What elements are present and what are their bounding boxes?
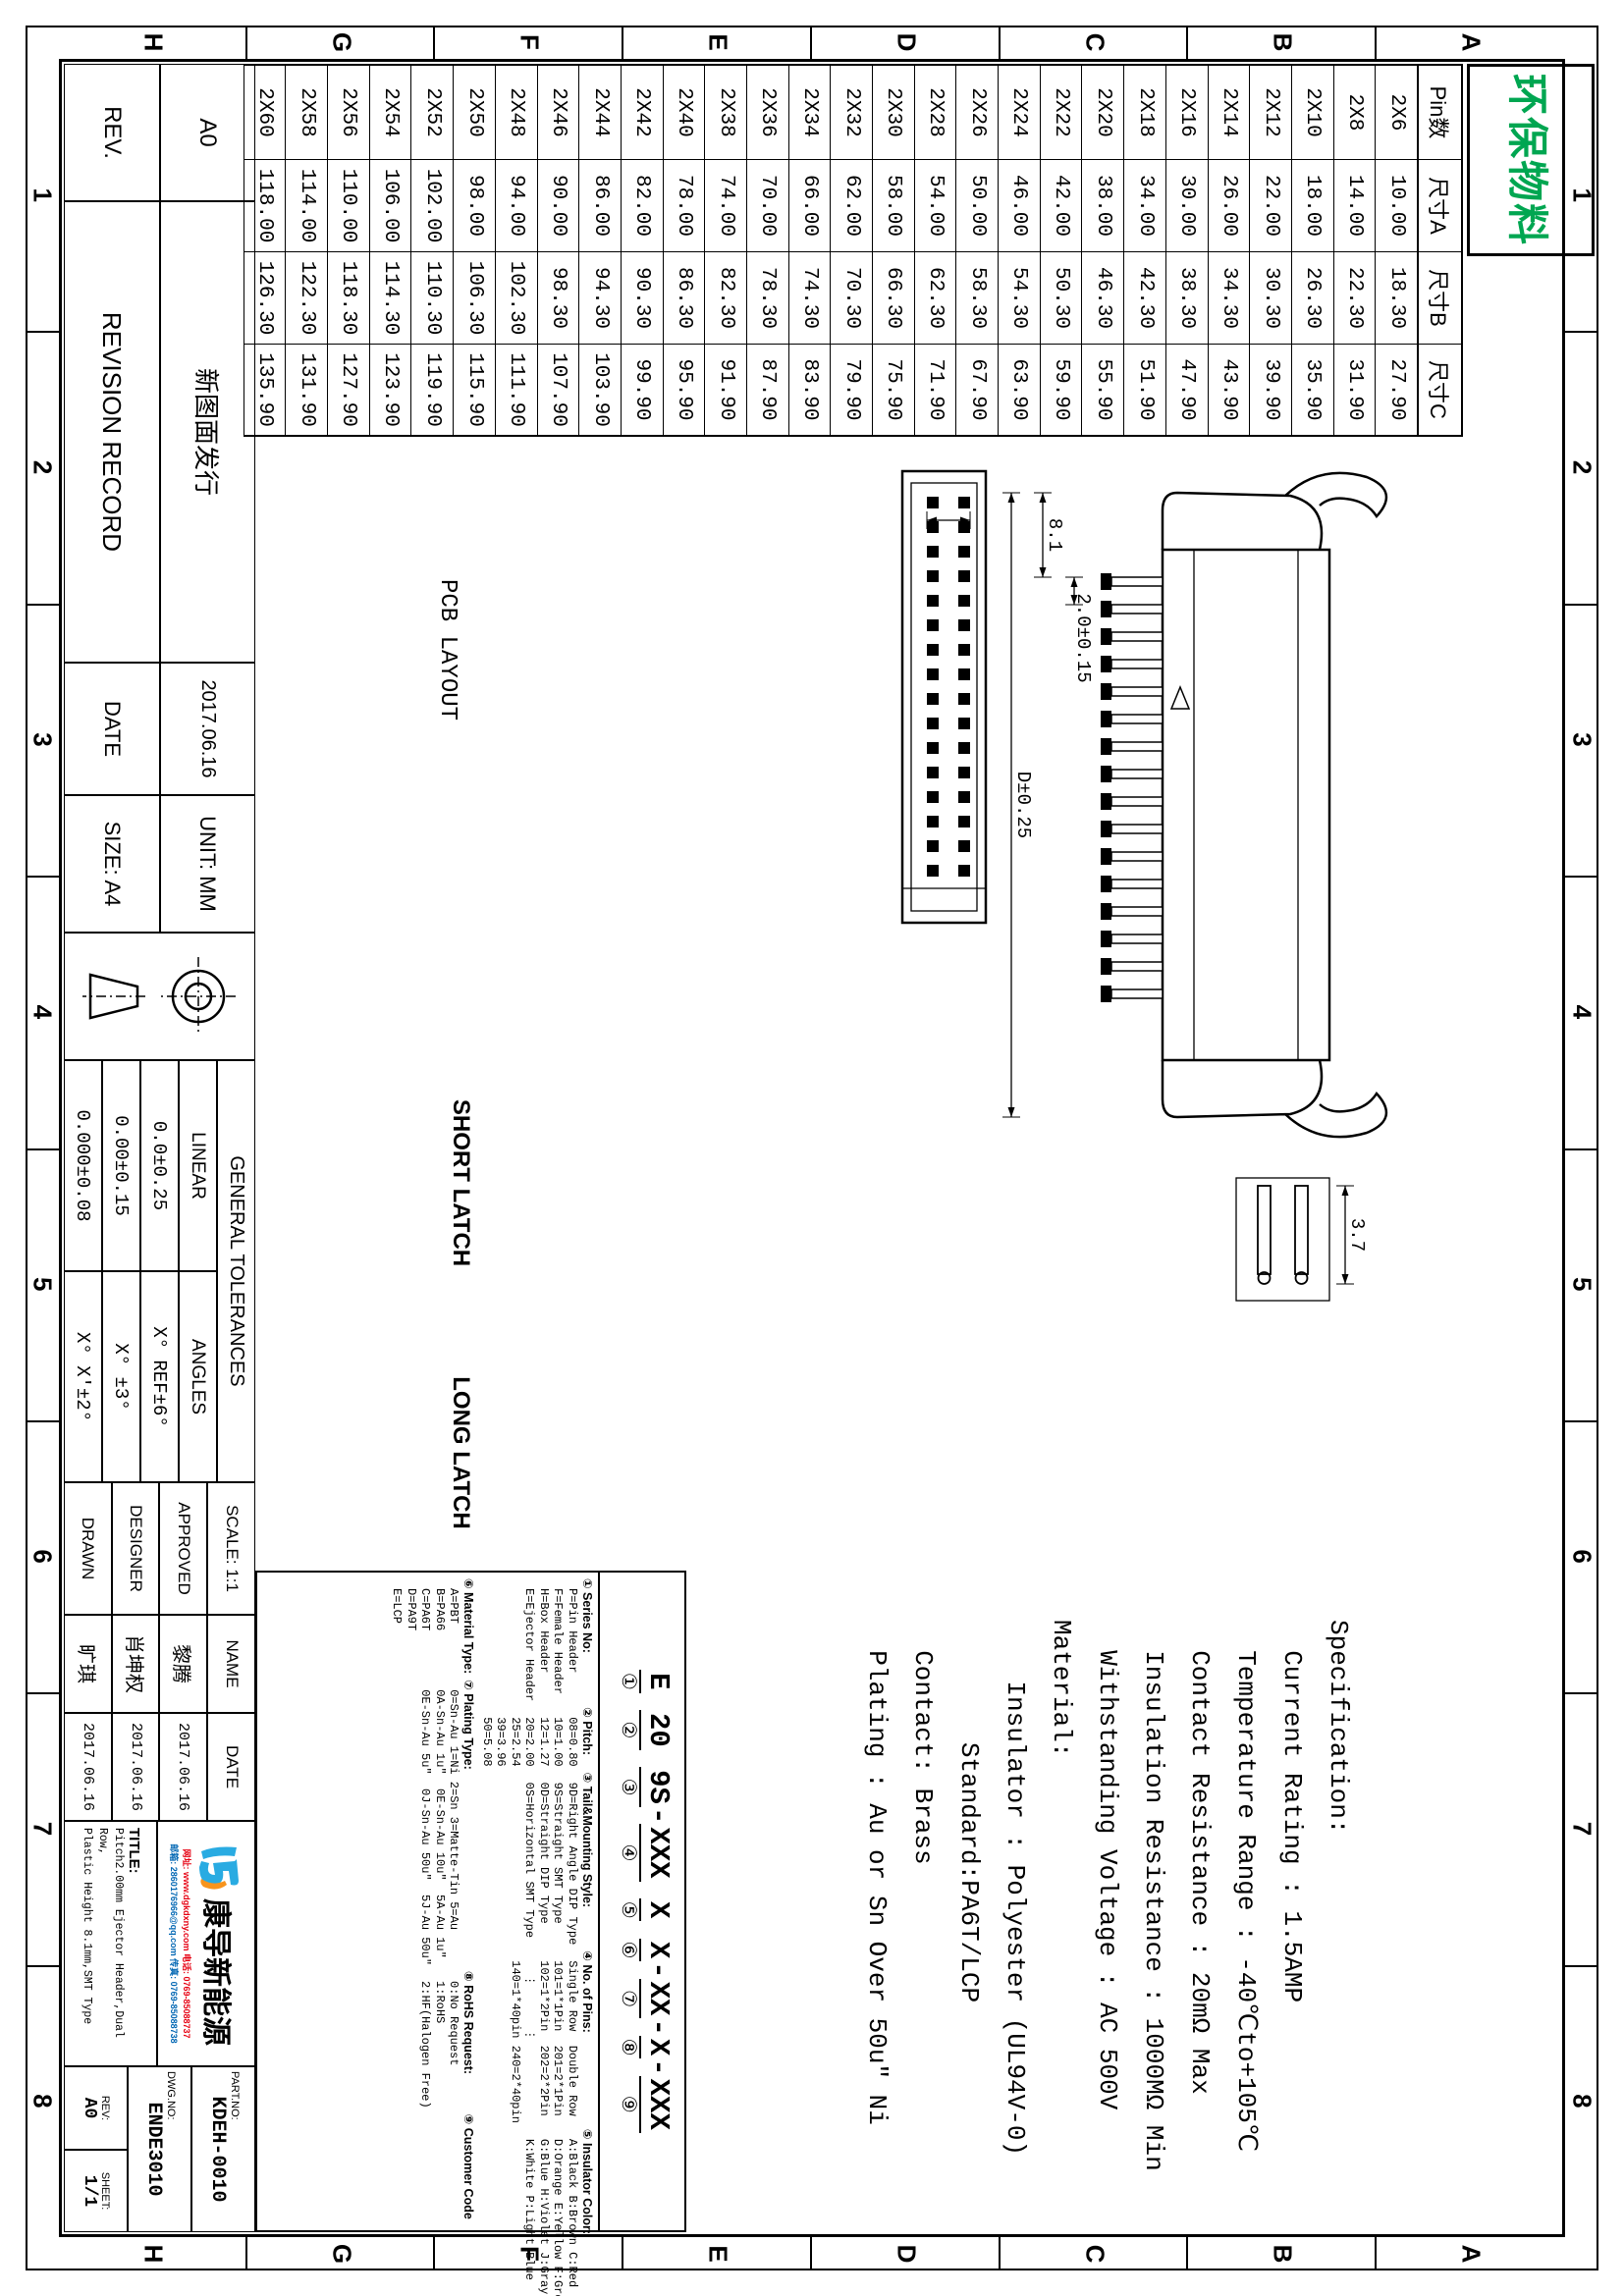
- sheet-cell: SHEET:1/1: [64, 2150, 128, 2232]
- staff-date: 2017.06.16: [64, 1713, 112, 1821]
- ordering-legend-item: 0D=Straight DIP Type: [537, 1773, 552, 1946]
- pcb-layout-label: PCB LAYOUT: [434, 579, 460, 721]
- ordering-legend-section: ① Series No:P=Pin HeaderF=Female HeaderH…: [480, 1578, 595, 1701]
- ordering-code-segment: E①: [614, 1670, 675, 1692]
- ordering-legend-item: D=PA9T: [405, 1578, 419, 1674]
- ordering-legend-item: 9D=Right Angle DIP Type: [566, 1773, 580, 1946]
- staff-date: 2017.06.16: [160, 1713, 208, 1821]
- ordering-legend-item: 101=1*1Pin 201=2*1Pin: [551, 1950, 566, 2123]
- specification-block: Specification: Current Rating : 1.5AMP T…: [853, 1620, 1361, 2232]
- tolerance-linear-value: 0.000±0.08: [64, 1060, 102, 1271]
- ordering-code-index: ⑧: [614, 2039, 639, 2056]
- ordering-legend-section: ⑤ Insulator Color:A:Black B:Brown C:RedD…: [480, 2129, 595, 2296]
- ordering-code-text: XX: [639, 1979, 675, 2019]
- staff-date: 2017.06.16: [112, 1713, 160, 1821]
- projection-symbol: [72, 937, 248, 1055]
- ordering-legend-section: ④ No. of Pins:Single Row Double Row101=1…: [480, 1950, 595, 2123]
- scale-cell: SCALE: 1:1: [207, 1482, 255, 1615]
- company-block: 康导新能源网址: www.dgkdxny.com 电话: 0769-850887…: [157, 1821, 255, 2066]
- tolerance-linear-value: 0.0±0.25: [140, 1060, 179, 1271]
- partno-value: KDEH-0010: [206, 2096, 229, 2202]
- dimension-text: 8.1: [1044, 518, 1065, 552]
- ordering-legend-section: ⑥ Material Type:A=PBTB=PA66C=PA6TD=PA9TE…: [390, 1578, 476, 1674]
- ordering-legend-title: ⑨ Customer Code: [461, 2114, 476, 2219]
- spec-line: Contact Resistance : 20mΩ Max: [1176, 1620, 1222, 2232]
- ordering-legend-title: ⑧ RoHS Request:: [461, 1971, 476, 2109]
- ordering-legend-item: E=Ejector Header: [522, 1578, 537, 1701]
- ordering-legend-item: Single Row Double Row: [566, 1950, 580, 2123]
- revision-date-label: DATE: [64, 663, 160, 795]
- ordering-code-segment: XX⑦: [614, 1979, 675, 2019]
- staff-name: 肖坤权: [112, 1615, 160, 1713]
- spec-line: Withstanding Voltage : AC 500V: [1084, 1620, 1130, 2232]
- ordering-legend-section: ⑧ RoHS Request:0:No Request1:RoHS2:HF(Ha…: [390, 1971, 476, 2109]
- revision-entry-rev: A0: [160, 64, 255, 201]
- ordering-code-text: 20: [639, 1710, 675, 1750]
- ordering-code-segment: X⑧: [614, 2036, 675, 2058]
- ordering-code-index: ⑤: [614, 1901, 639, 1919]
- staff-name: 旷琪: [64, 1615, 112, 1713]
- dwgno-label: DWG.NO:: [165, 2067, 177, 2120]
- ordering-code-segment: 9S③: [614, 1767, 675, 1807]
- ordering-legend-item: E=LCP: [390, 1578, 405, 1674]
- rev-cell: REV:A0: [64, 2066, 128, 2150]
- ordering-legend-item: G:Blue H:Violet J:Gray: [537, 2129, 552, 2296]
- long-latch-label: LONG LATCH: [447, 1376, 474, 1529]
- dimension-text: 2.0±0.15: [1072, 593, 1094, 682]
- ordering-code-index: ⑨: [614, 2096, 639, 2113]
- ordering-legend-section: ② Pitch:08=0.8010=1.0012=1.2720=2.0025=2…: [480, 1707, 595, 1766]
- drawing-viewport: AABBCCDDEEFFGGHH1122334455667788 环保物料 Pi…: [0, 0, 1624, 2296]
- rev-value: A0: [81, 2098, 100, 2119]
- ordering-legend-title: ⑤ Insulator Color:: [579, 2129, 594, 2296]
- ordering-legend-title: ④ No. of Pins:: [579, 1950, 594, 2123]
- name-header: NAME: [207, 1615, 255, 1713]
- ordering-code-separator: [641, 1750, 675, 1767]
- ordering-code-separator: [641, 1693, 675, 1710]
- sheet-label: SHEET:: [100, 2172, 112, 2211]
- ordering-legend-top: ① Series No:P=Pin HeaderF=Female HeaderH…: [480, 1573, 599, 2230]
- partno-cell: PART.NO:KDEH-0010: [191, 2066, 255, 2232]
- ordering-legend-title: ② Pitch:: [579, 1707, 594, 1766]
- short-latch-label: SHORT LATCH: [447, 1099, 474, 1266]
- ordering-legend-title: ③ Tail&Mounting Style:: [579, 1773, 594, 1946]
- ordering-legend-section: ⑨ Customer Code: [390, 2114, 476, 2219]
- company-row: 康导新能源: [193, 1842, 244, 2046]
- revision-entry-date: 2017.06.16: [160, 663, 255, 795]
- company-contact-2: 邮箱: 2860176966@qq.com 传真: 0769-85088738: [168, 1843, 181, 2043]
- ordering-legend-item: P=Pin Header: [566, 1578, 580, 1701]
- ordering-legend-item: B=PA66: [433, 1578, 448, 1674]
- spec-line: Material:: [1038, 1620, 1084, 2232]
- title-cell: TITLE:Pitch2.00mm Ejector Header,Dual Ro…: [64, 1821, 157, 2066]
- ordering-legend-item: 2:HF(Halogen Free): [418, 1971, 433, 2109]
- ordering-code-separator: -: [641, 2058, 675, 2075]
- ordering-legend-item: D:Orange E:Yellow F:Green: [551, 2129, 566, 2296]
- spec-line: Plating : Au or Sn Over 50u" Ni: [853, 1620, 899, 2232]
- ordering-code-segment: XXX⑨: [614, 2076, 675, 2133]
- tolerance-angle-value: X° ±3°: [102, 1271, 140, 1482]
- ordering-code-segment: X⑥: [614, 1939, 675, 1961]
- ordering-code-segment: X⑤: [614, 1898, 675, 1921]
- ordering-code-text: X: [639, 1898, 675, 1921]
- title-line: Pitch2.00mm Ejector Header,Dual Row,: [94, 1828, 126, 2059]
- ordering-legend-item: F=Female Header: [551, 1578, 566, 1701]
- staff-name: 黎腾: [160, 1615, 208, 1713]
- date-header: DATE: [207, 1713, 255, 1821]
- ordering-legend-item: 20=2.00: [522, 1707, 537, 1766]
- ordering-code-index: ①: [614, 1673, 639, 1690]
- ordering-information-box: E① 20② 9S③-XXX④ X⑤ X⑥-XX⑦-X⑧-XXX⑨ ① Seri…: [255, 1571, 686, 2232]
- ordering-code-text: XXX: [639, 2076, 675, 2133]
- revision-rev-label: REV.: [64, 64, 160, 201]
- ordering-code-separator: -: [641, 1807, 675, 1824]
- ordering-legend-item: 0:No Request: [447, 1971, 461, 2109]
- spec-line: Temperature Range : -40℃to+105℃: [1222, 1620, 1269, 2232]
- ordering-legend-item: A:Black B:Brown C:Red: [566, 2129, 580, 2296]
- tolerance-angle-value: X° REF±6°: [140, 1271, 179, 1482]
- title-line: Plastic Height 8.1mm,SMT Type: [79, 1828, 94, 2024]
- ordering-legend-item: 39=3.96: [494, 1707, 509, 1766]
- partno-label: PART.NO:: [229, 2067, 241, 2120]
- ordering-code-segment: XXX④: [614, 1824, 675, 1881]
- revision-entry-desc: 新图面发行: [160, 201, 255, 663]
- ordering-code-index: ⑦: [614, 1990, 639, 2007]
- ordering-code-index: ④: [614, 1844, 639, 1862]
- company-contact-1: 网址: www.dgkdxny.com 电话: 0769-85088737: [181, 1848, 193, 2038]
- ordering-legend-item: 140=1*40pin 240=2*40pin: [509, 1950, 523, 2123]
- ordering-code-index: ③: [614, 1779, 639, 1796]
- ordering-code: E① 20② 9S③-XXX④ X⑤ X⑥-XX⑦-X⑧-XXX⑨: [598, 1573, 684, 2230]
- rev-label: REV:: [100, 2096, 112, 2120]
- ordering-legend-section: ⑦ Plating Type:0=Sn-Au 1=Ni 2=Sn 3=Matte…: [390, 1680, 476, 1965]
- ordering-code-index: ②: [614, 1721, 639, 1738]
- staff-role: DRAWN: [64, 1482, 112, 1615]
- ordering-code-segment: 20②: [614, 1710, 675, 1750]
- ordering-code-index: ⑥: [614, 1942, 639, 1959]
- ordering-legend-item: 25=2.54: [509, 1707, 523, 1766]
- ordering-legend-bottom: ⑥ Material Type:A=PBTB=PA66C=PA6TD=PA9TE…: [390, 1573, 480, 2230]
- tolerances-header: GENERAL TOLERANCES: [217, 1060, 255, 1482]
- ordering-legend-item: 9S=Straight SMT Type: [551, 1773, 566, 1946]
- tolerances-angles-label: ANGLES: [179, 1271, 217, 1482]
- company-name: 康导新能源: [197, 1898, 241, 2046]
- tolerance-linear-value: 0.00±0.15: [102, 1060, 140, 1271]
- dimension-text: D±0.25: [1012, 772, 1034, 838]
- ordering-legend-item: 50=5.08: [480, 1707, 495, 1766]
- ordering-legend-item: 0A-Sn-Au 1u" 0E-Sn-Au 10u" 5A-Au 1u": [433, 1680, 448, 1965]
- ordering-legend-item: H=Box Header: [537, 1578, 552, 1701]
- ordering-legend-section: ③ Tail&Mounting Style:9D=Right Angle DIP…: [480, 1773, 595, 1946]
- title-label: TITLE:: [126, 1828, 142, 1874]
- spec-line: Current Rating : 1.5AMP: [1269, 1620, 1315, 2232]
- ordering-legend-title: ① Series No:: [579, 1578, 594, 1701]
- ordering-legend-item: K:White P:Light Blue: [522, 2129, 537, 2296]
- ordering-code-text: XXX: [639, 1824, 675, 1881]
- staff-role: APPROVED: [160, 1482, 208, 1615]
- ordering-legend-item: A=PBT: [447, 1578, 461, 1674]
- ordering-legend-item: 1:RoHS: [433, 1971, 448, 2109]
- ordering-legend-item: 0E-Sn-Au 5u" 0J-Sn-Au 50u" 5J-Au 50u": [418, 1680, 433, 1965]
- ordering-legend-item: ⋮ ⋮: [522, 1950, 537, 2123]
- spec-line: Insulation Resistance : 1000MΩ Min: [1130, 1620, 1176, 2232]
- dwgno-cell: DWG.NO:ENDE3010: [128, 2066, 191, 2232]
- dimension-text: 3.7: [1346, 1218, 1368, 1252]
- ordering-legend-item: C=PA6T: [418, 1578, 433, 1674]
- unit-cell: UNIT: MM: [160, 795, 255, 933]
- tolerances-linear-label: LINEAR: [179, 1060, 217, 1271]
- ordering-code-separator: [641, 1921, 675, 1938]
- ordering-legend-item: 0=Sn-Au 1=Ni 2=Sn 3=Matte-Tin 5=Au: [447, 1680, 461, 1965]
- size-cell: SIZE: A4: [64, 795, 160, 933]
- ordering-code-text: 9S: [639, 1767, 675, 1807]
- tolerance-angle-value: X° X'±2°: [64, 1271, 102, 1482]
- spec-line: Contact: Brass: [899, 1620, 946, 2232]
- ordering-legend-item: 102=1*2Pin 202=2*2Pin: [537, 1950, 552, 2123]
- title-block: A0新图面发行2017.06.16REV.REVISION RECORDDATE…: [64, 64, 255, 2232]
- ordering-code-separator: [641, 1882, 675, 1898]
- ordering-code-separator: -: [641, 2018, 675, 2035]
- ordering-code-text: X: [639, 1939, 675, 1961]
- ordering-code-text: X: [639, 2036, 675, 2058]
- ordering-legend-title: ⑥ Material Type:: [461, 1578, 476, 1674]
- drawing-sheet: AABBCCDDEEFFGGHH1122334455667788 环保物料 Pi…: [0, 0, 1624, 2296]
- spec-line: Specification:: [1315, 1620, 1361, 2232]
- sheet-value: 1/1: [81, 2175, 100, 2207]
- company-logo: [193, 1842, 244, 1893]
- ordering-code-text: E: [639, 1670, 675, 1692]
- projection-symbol-cell: [64, 933, 255, 1060]
- spec-line: Standard:PA6T/LCP: [946, 1620, 992, 2232]
- ordering-legend-item: 10=1.00: [551, 1707, 566, 1766]
- ordering-code-separator: -: [641, 1961, 675, 1978]
- spec-line: Insulator : Polyester (UL94V-0): [992, 1620, 1038, 2232]
- dwgno-value: ENDE3010: [142, 2102, 165, 2196]
- staff-role: DESIGNER: [112, 1482, 160, 1615]
- ordering-legend-item: 12=1.27: [537, 1707, 552, 1766]
- revision-record-label: REVISION RECORD: [64, 201, 160, 663]
- ordering-legend-title: ⑦ Plating Type:: [461, 1680, 476, 1965]
- ordering-legend-item: 0S=Horizontal SMT Type: [522, 1773, 537, 1946]
- ordering-legend-item: 08=0.80: [566, 1707, 580, 1766]
